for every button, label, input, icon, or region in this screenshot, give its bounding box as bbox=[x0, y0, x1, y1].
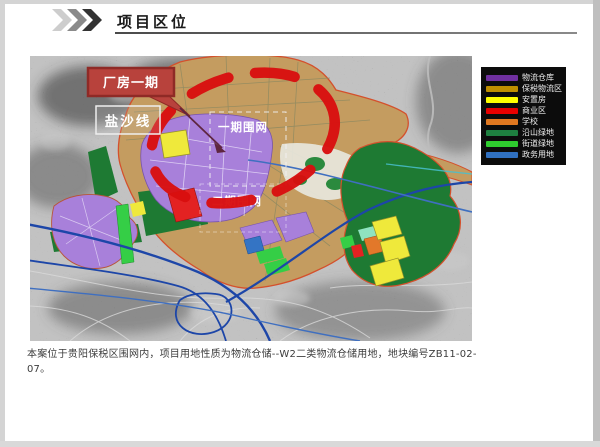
map-image: 一期围网 二期围网 盐沙线 厂房一期 bbox=[30, 56, 472, 341]
callout-label: 厂房一期 bbox=[103, 75, 159, 91]
legend-item: 政务用地 bbox=[486, 149, 562, 160]
legend-item: 保税物流区 bbox=[486, 83, 562, 94]
caption: 本案位于贵阳保税区围网内，项目用地性质为物流仓储--W2二类物流仓储用地，地块编… bbox=[27, 345, 482, 375]
legend-swatch bbox=[486, 97, 518, 103]
legend-item: 安置房 bbox=[486, 94, 562, 105]
legend-swatch bbox=[486, 141, 518, 147]
legend-swatch bbox=[486, 152, 518, 158]
title-underline bbox=[115, 32, 577, 34]
legend-swatch bbox=[486, 130, 518, 136]
legend-label: 街道绿地 bbox=[522, 140, 554, 148]
legend-item: 街道绿地 bbox=[486, 138, 562, 149]
frame-edge-right bbox=[593, 0, 600, 447]
legend-item: 商业区 bbox=[486, 105, 562, 116]
legend-label: 政务用地 bbox=[522, 151, 554, 159]
legend-swatch bbox=[486, 86, 518, 92]
legend-swatch bbox=[486, 119, 518, 125]
legend-label: 保税物流区 bbox=[522, 85, 562, 93]
road-label-box: 盐沙线 bbox=[96, 106, 160, 134]
frame-edge-bottom bbox=[0, 441, 600, 447]
legend-label: 学校 bbox=[522, 118, 538, 126]
slide: 项目区位 bbox=[0, 0, 600, 447]
frame-edge-left bbox=[0, 0, 5, 447]
legend-item: 学校 bbox=[486, 116, 562, 127]
road-label: 盐沙线 bbox=[105, 113, 152, 130]
fence-label-upper: 一期围网 bbox=[218, 120, 268, 134]
legend-item: 物流仓库 bbox=[486, 72, 562, 83]
map-legend: 物流仓库 保税物流区 安置房 商业区 学校 沿山绿地 街道绿地 政务用地 bbox=[481, 67, 566, 165]
legend-label: 物流仓库 bbox=[522, 74, 554, 82]
frame-edge-top bbox=[0, 0, 600, 4]
legend-swatch bbox=[486, 75, 518, 81]
legend-label: 安置房 bbox=[522, 96, 546, 104]
chevrons-icon bbox=[52, 9, 106, 31]
legend-swatch bbox=[486, 108, 518, 114]
legend-label: 商业区 bbox=[522, 107, 546, 115]
legend-item: 沿山绿地 bbox=[486, 127, 562, 138]
page-title: 项目区位 bbox=[117, 11, 189, 32]
legend-label: 沿山绿地 bbox=[522, 129, 554, 137]
